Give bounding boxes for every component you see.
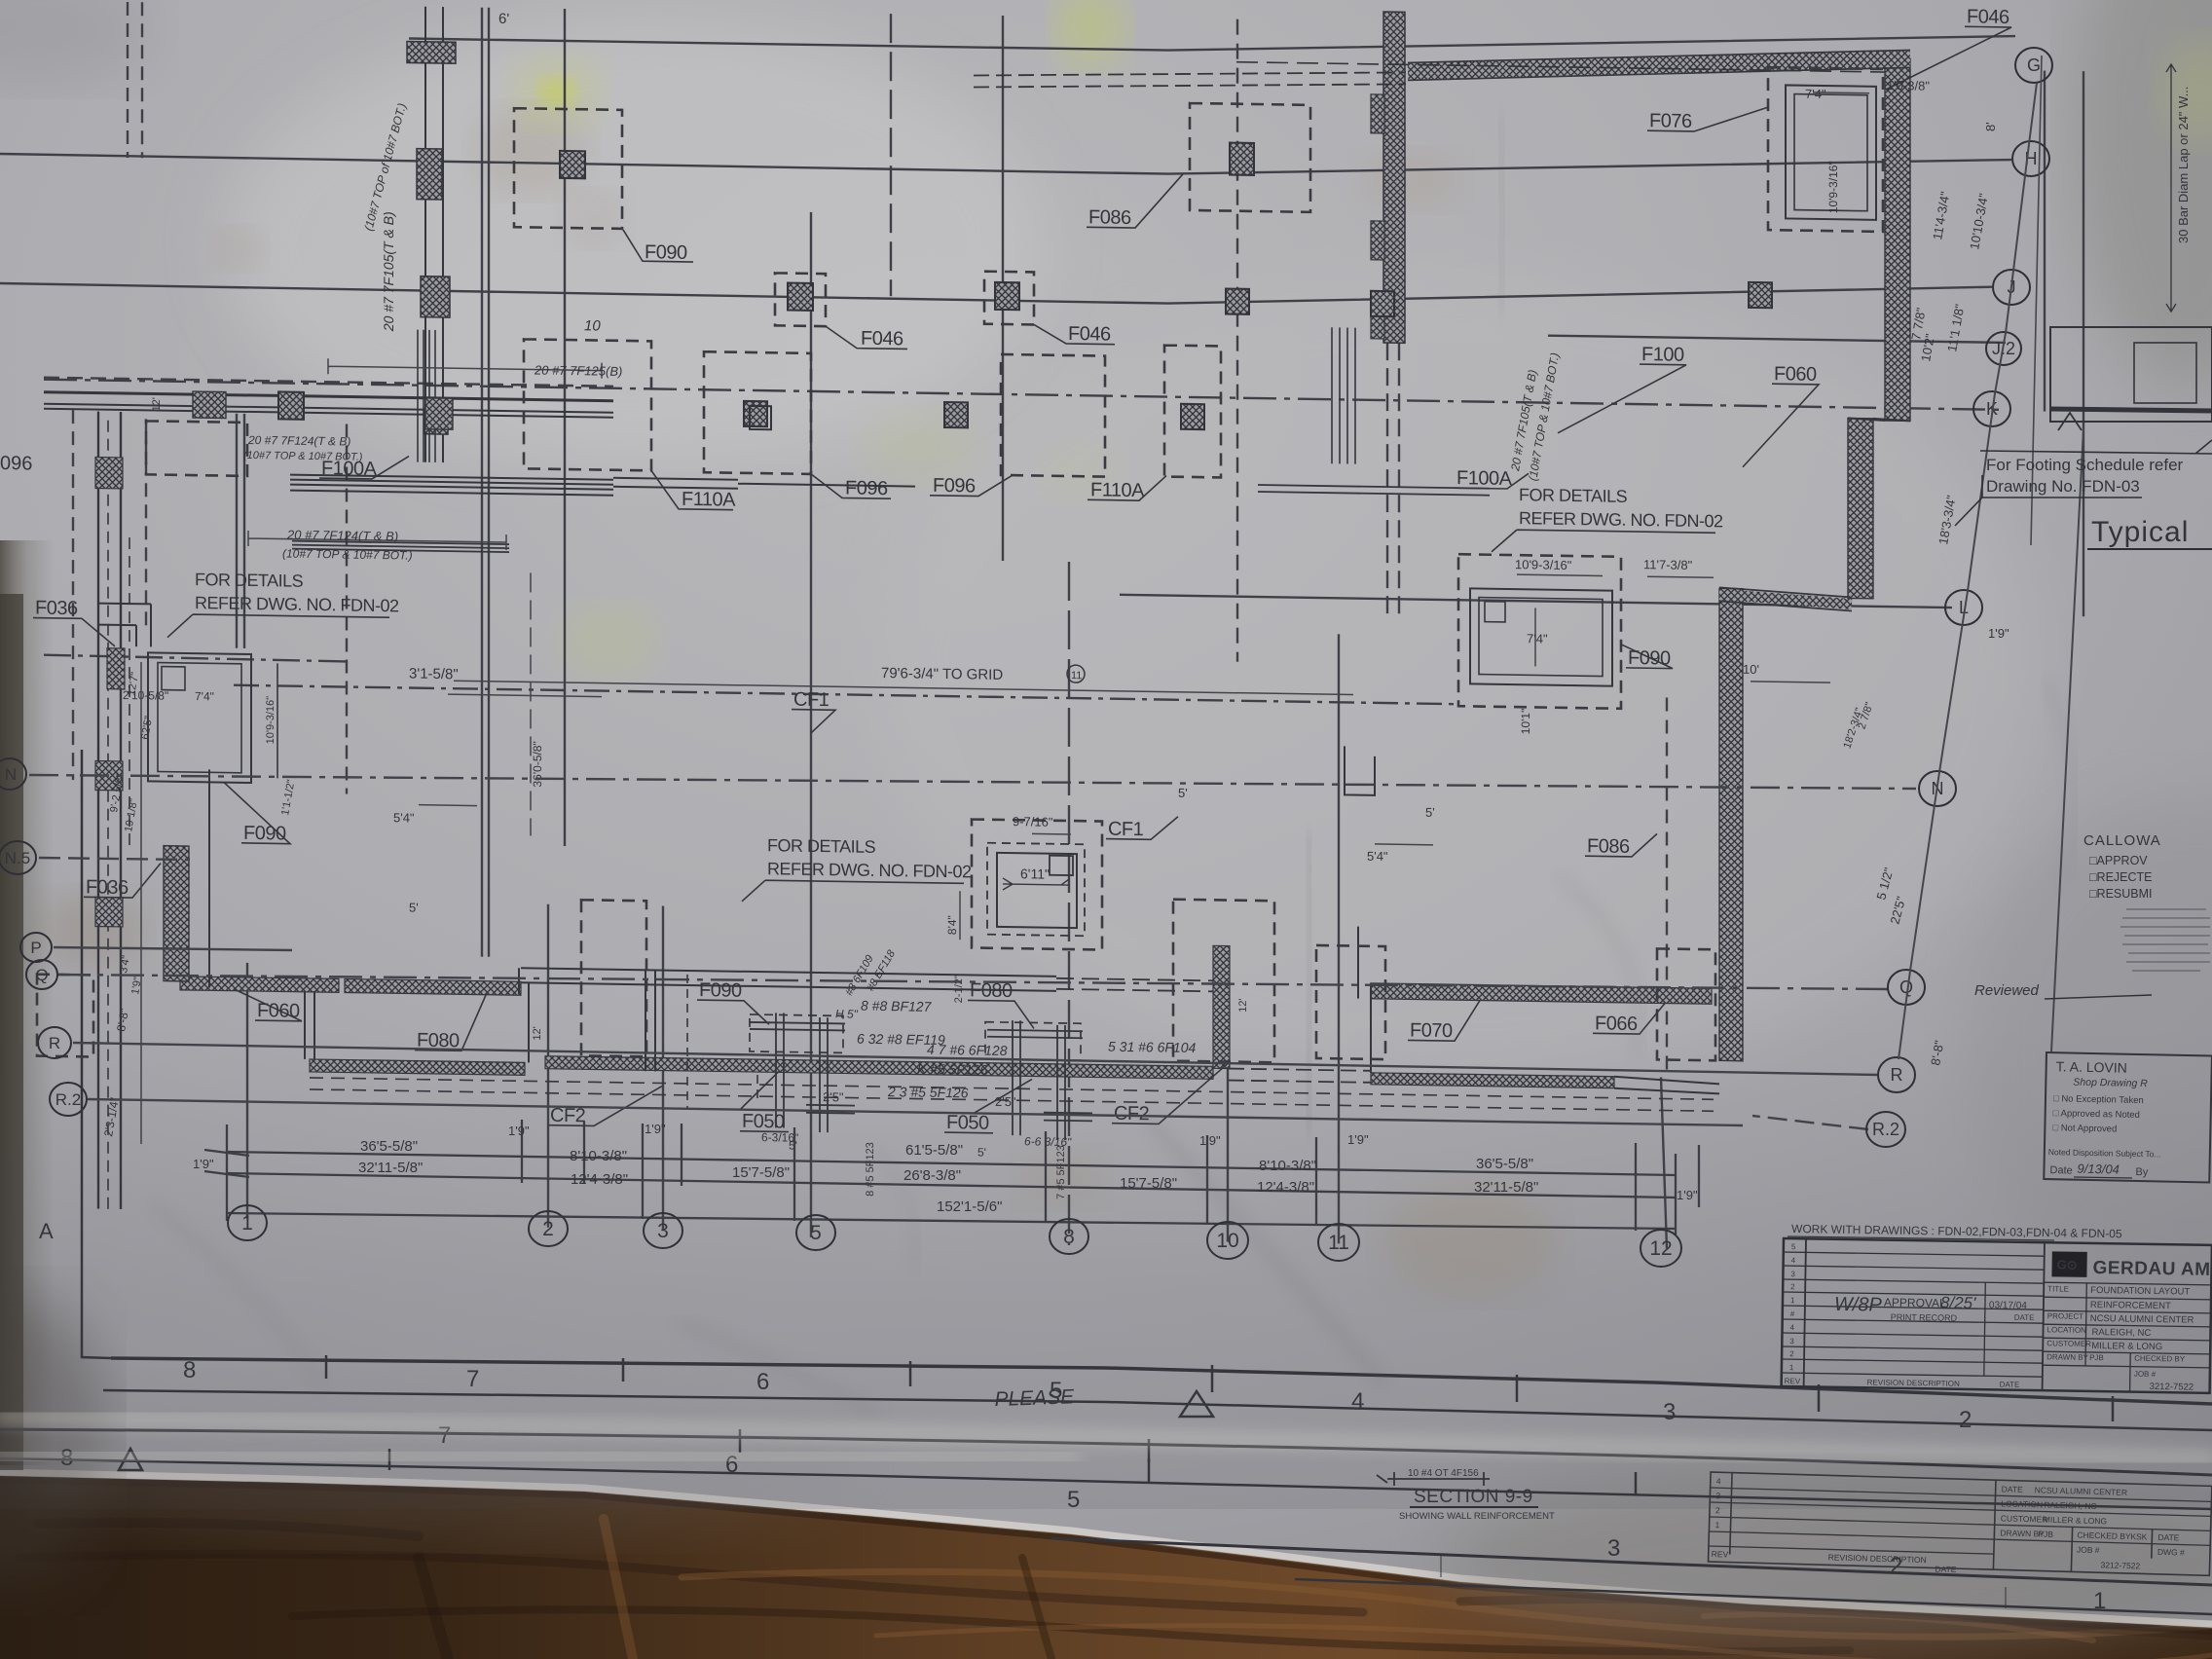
svg-text:9-7/16": 9-7/16": [1013, 814, 1053, 829]
svg-text:CUSTOMER: CUSTOMER: [2001, 1513, 2048, 1524]
svg-text:6': 6': [498, 11, 509, 27]
svg-text:7'4": 7'4": [195, 689, 214, 703]
svg-text:N.5: N.5: [5, 849, 30, 867]
svg-text:REFER DWG. NO. FDN-02: REFER DWG. NO. FDN-02: [767, 859, 972, 881]
svg-text:MILLER & LONG: MILLER & LONG: [2044, 1515, 2107, 1527]
svg-text:096: 096: [0, 453, 32, 475]
svg-text:N: N: [5, 765, 17, 784]
svg-text:8': 8': [1983, 122, 1998, 131]
svg-text:DATE: DATE: [2157, 1532, 2180, 1543]
svg-text:PJB: PJB: [2038, 1529, 2053, 1538]
svg-text:20 #7 7F125(B): 20 #7 7F125(B): [534, 362, 622, 378]
svg-text:REFER DWG. NO. FDN-02: REFER DWG. NO. FDN-02: [195, 593, 399, 615]
svg-text:5'4": 5'4": [393, 810, 415, 825]
svg-text:JOB #: JOB #: [2077, 1545, 2100, 1556]
svg-text:F036: F036: [35, 598, 78, 620]
svg-text:CHECKED BY: CHECKED BY: [2077, 1530, 2131, 1542]
svg-text:20 #7 7F124(T & B): 20 #7 7F124(T & B): [247, 433, 350, 449]
svg-text:FOR DETAILS: FOR DETAILS: [1519, 485, 1628, 506]
svg-text:1: 1: [1714, 1520, 1719, 1530]
svg-text:(10#7 TOP & 10#7 BOT.): (10#7 TOP & 10#7 BOT.): [282, 546, 413, 562]
svg-text:REFER DWG. NO. FDN-02: REFER DWG. NO. FDN-02: [1519, 508, 1723, 531]
svg-text:F036: F036: [86, 876, 129, 899]
svg-text:F110A: F110A: [682, 489, 736, 511]
svg-text:1'9": 1'9": [1988, 626, 2009, 641]
svg-text:11'7-3/8": 11'7-3/8": [1643, 557, 1693, 572]
svg-text:F046: F046: [861, 328, 903, 350]
svg-text:7'4": 7'4": [1527, 631, 1548, 645]
svg-text:F110A: F110A: [1090, 479, 1145, 501]
svg-text:FOR DETAILS: FOR DETAILS: [767, 835, 876, 857]
svg-text:Typical: Typical: [2091, 516, 2189, 548]
svg-text:79'6-3/4" TO GRID: 79'6-3/4" TO GRID: [881, 665, 1003, 683]
svg-text:REV: REV: [1712, 1549, 1729, 1559]
svg-text:Drawing No. FDN-03: Drawing No. FDN-03: [1986, 477, 2140, 496]
svg-text:H 5": H 5": [835, 1007, 859, 1020]
svg-text:F090: F090: [645, 241, 687, 264]
svg-text:10'9-3/16": 10'9-3/16": [265, 696, 276, 745]
svg-text:3'1-5/8": 3'1-5/8": [409, 666, 459, 683]
svg-text:(10#7 TOP & 10#7 BOT.): (10#7 TOP & 10#7 BOT.): [243, 450, 363, 463]
svg-text:DWG #: DWG #: [2157, 1547, 2185, 1558]
svg-text:CALLOWA: CALLOWA: [2083, 832, 2161, 849]
svg-text:1: 1: [2093, 1588, 2106, 1614]
svg-text:10'1": 10'1": [1519, 709, 1532, 735]
svg-text:5': 5': [1178, 786, 1188, 800]
svg-text:F100A: F100A: [1456, 467, 1513, 490]
svg-text:F086: F086: [1587, 835, 1630, 858]
svg-text:12': 12': [1237, 998, 1249, 1013]
svg-text:5'4": 5'4": [1367, 849, 1388, 864]
svg-text:20 #7 7F105(T & B): 20 #7 7F105(T & B): [381, 211, 396, 332]
svg-text:3: 3: [1607, 1535, 1620, 1562]
svg-text:6'11": 6'11": [1020, 866, 1050, 881]
svg-text:P: P: [30, 939, 41, 957]
svg-text:2-1/2": 2-1/2": [953, 975, 965, 1003]
svg-text:1'0-3/8": 1'0-3/8": [1887, 78, 1930, 93]
svg-text:SHOWING WALL REINFORCEMENT: SHOWING WALL REINFORCEMENT: [1399, 1511, 1555, 1522]
svg-text:12': 12': [151, 397, 163, 412]
svg-text:□APPROV: □APPROV: [2089, 854, 2148, 867]
svg-text:For Footing Schedule refer: For Footing Schedule refer: [1986, 456, 2184, 474]
svg-text:F076: F076: [1649, 110, 1692, 132]
svg-text:20 #7 7F124(T & B): 20 #7 7F124(T & B): [286, 528, 398, 544]
svg-text:DATE: DATE: [1935, 1564, 1957, 1574]
svg-text:F046: F046: [1068, 323, 1111, 346]
svg-text:F096: F096: [933, 475, 976, 498]
svg-text:30 Bar Diam Lap or 24" W..: 30 Bar Diam Lap or 24" W...: [2176, 87, 2191, 243]
svg-text:5': 5': [409, 901, 419, 915]
svg-text:8'4": 8'4": [945, 915, 959, 935]
svg-text:11: 11: [1071, 670, 1082, 682]
svg-text:8 #8 BF127: 8 #8 BF127: [861, 998, 933, 1014]
svg-text:FOR DETAILS: FOR DETAILS: [195, 570, 304, 591]
svg-text:5': 5': [1425, 805, 1435, 820]
svg-text:Q: Q: [35, 966, 48, 984]
svg-text:10'9-3/16": 10'9-3/16": [1826, 161, 1840, 213]
svg-text:□RESUBMI: □RESUBMI: [2089, 887, 2153, 901]
svg-text:CF1: CF1: [1108, 819, 1144, 841]
svg-text:F060: F060: [1774, 363, 1817, 386]
svg-text:F086: F086: [1088, 206, 1131, 229]
svg-text:10': 10': [1743, 662, 1759, 677]
svg-text:F046: F046: [1967, 6, 2009, 28]
svg-text:7'4": 7'4": [1805, 87, 1826, 101]
svg-text:36'0-5/8": 36'0-5/8": [531, 741, 544, 787]
svg-text:3212-7522: 3212-7522: [2100, 1560, 2140, 1570]
svg-text:10'9-3/16": 10'9-3/16": [1515, 557, 1572, 572]
svg-text:10: 10: [584, 317, 601, 334]
svg-text:KSK: KSK: [2130, 1531, 2148, 1541]
svg-text:F096: F096: [845, 477, 888, 499]
svg-text:□REJECTE: □REJECTE: [2089, 870, 2153, 884]
svg-text:F090: F090: [699, 979, 742, 1002]
svg-text:G: G: [2027, 55, 2041, 75]
svg-text:CF1: CF1: [793, 689, 829, 712]
svg-text:F100: F100: [1641, 344, 1684, 366]
svg-text:Reviewed: Reviewed: [1974, 982, 2040, 999]
